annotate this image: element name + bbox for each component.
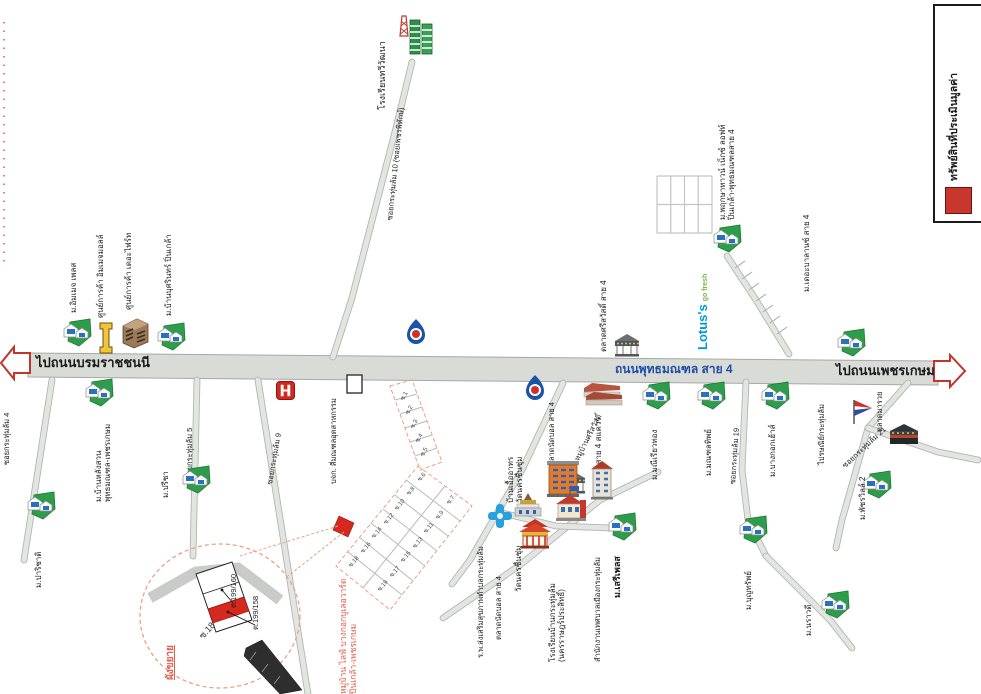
pruksa-town-next-loft-icon xyxy=(712,222,742,254)
seri-place-label: ม.เสรีเพลส xyxy=(612,556,623,598)
legend-box: ทรัพย์สินที่ประเมินมูลค่า xyxy=(933,4,981,223)
label-line: ม.บุญทรัพย์ xyxy=(744,571,753,610)
sai4-square-icon xyxy=(582,380,624,406)
baan-langsuan-label: ม.บ้านหลังสวนพุทธมณฑล-เพชรเกษม xyxy=(94,424,113,502)
bangkok-house-label: ม.บางกอกเฮ้าส์ xyxy=(768,425,777,477)
label-line: ตลาดศรีสวัสดิ์ สาย 4 xyxy=(599,280,608,352)
label-line: ต.199/160 xyxy=(230,574,239,608)
label-line: สำนักงานเทศบาลเมืองกระทุ่มล้ม xyxy=(594,557,603,662)
talat-maruay-icon xyxy=(888,424,920,446)
road-east-label-label: ไปถนนเพชรเกษม xyxy=(836,363,935,378)
health-promoting-hospital-label: ร.พ.ส่งเสริมสุขภาพตำบลกระทุ่มล้ม xyxy=(477,546,486,658)
naravadee-village-label: ม.นราวดี xyxy=(804,605,813,636)
bangkok-house-icon xyxy=(760,379,790,411)
label-line: โรงเรียนทวีวัฒนา xyxy=(377,41,388,110)
seri-place-icon xyxy=(607,510,637,542)
life-bangkok-boulevard-label: หมู่บ้าน ไลฟ์ บางกอกบูเลอวาร์ดปิ่นเกล้า-… xyxy=(338,579,358,694)
label-line: ต.199/158 xyxy=(252,596,261,630)
road-west-label-label: ไปถนนบรมราชชนนี xyxy=(36,355,150,370)
parichat-village-label: ม.ปาริชาติ xyxy=(34,552,43,588)
school-taweewattana-label: โรงเรียนทวีวัฒนา xyxy=(377,41,388,110)
label-line: ม.พัชรวิลล์ 2 xyxy=(858,477,867,520)
label-line: ม.บ้านหลังสวน xyxy=(94,424,103,502)
srisawat-market-icon xyxy=(612,333,642,357)
road-name-label-label: ถนนพุทธมณฑล สาย 4 xyxy=(615,362,733,376)
wat-nakhon-chuenchum-label: วัดนครชื่นชุ่ม xyxy=(514,546,523,592)
label-line: (นครราษฎร์ประสิทธิ์) xyxy=(557,583,566,662)
the-bright-mall-label: ศูนย์การค้า เดอะไฟร์ท xyxy=(124,233,133,310)
boonsap-village-label: ม.บุญทรัพย์ xyxy=(744,571,753,610)
manee-riewthong-label: ม.มณีเรียวทอง xyxy=(650,430,659,480)
lotus-tagline: go fresh xyxy=(702,274,709,302)
label-line: ม.เสรีเพลส xyxy=(612,556,623,598)
srisawat-market-label: ตลาดศรีสวัสดิ์ สาย 4 xyxy=(599,280,608,352)
kratumlom-municipality-label: สำนักงานเทศบาลเมืองกระทุ่มล้ม xyxy=(594,557,603,662)
si-monthon-industry-label: บจก. สี่มณฑลอุตสาหกรรม xyxy=(330,398,339,484)
label-line: ม.นราวดี xyxy=(804,605,813,636)
lotus-logo-text: Lotus's xyxy=(695,304,710,350)
ptt-station-north-icon xyxy=(406,318,426,344)
boonsap-village-icon xyxy=(738,513,768,545)
parichat-village-icon xyxy=(26,489,56,521)
soi-kratumlom-4-label: ซอยกระทุ่มล้ม 4 xyxy=(3,413,12,465)
the-bright-mall-icon xyxy=(120,316,150,350)
ptt-station-south-icon xyxy=(525,374,545,400)
inset-title-label: ผังขยาย xyxy=(165,645,177,680)
label-line: ตลาดนัดบอล สาย 4 xyxy=(495,576,504,640)
the-balance-sai4-icon xyxy=(836,326,866,358)
label-line: พุทธมณฑล-เพชรเกษม xyxy=(103,424,112,502)
label-line: ไปรษณีย์กระทุ่มล้ม xyxy=(818,404,827,465)
temple-hall-icon xyxy=(518,519,552,549)
label-line: ม.มณฑลทิพย์ xyxy=(704,429,713,476)
manee-riewthong-icon xyxy=(641,379,671,411)
image-mall-label: ศูนย์การค้า อิมเมจมอลล์ xyxy=(96,234,105,318)
label-line: บจก. สี่มณฑลอุตสาหกรรม xyxy=(330,398,339,484)
map-canvas: ทรัพย์สินที่ประเมินมูลค่า Lotus's go fre… xyxy=(0,0,981,694)
kratumlom-post-office-label: ไปรษณีย์กระทุ่มล้ม xyxy=(818,404,827,465)
label-line: ศูนย์การค้า อิมเมจมอลล์ xyxy=(96,234,105,318)
plot-199-158-label: ต.199/158 xyxy=(252,596,261,630)
school-ban-kratumlom-icon xyxy=(552,484,588,526)
pruksa-town-next-loft-label: ม.พฤกษาทาวน์ เน็กซ์ ลอฟท์ปิ่นเกล้า-พุทธม… xyxy=(718,124,737,220)
label-line: ถนนพุทธมณฑล สาย 4 xyxy=(615,362,733,376)
image-place-label: ม.อิมเมจ เพลส xyxy=(69,263,78,313)
label-line: วัดนครชื่นชุ่ม xyxy=(514,546,523,592)
label-line: ไปถนนเพชรเกษม xyxy=(836,363,935,378)
label-line: ม.มณีเรียวทอง xyxy=(650,430,659,480)
label-line: ศูนย์การค้า เดอะไฟร์ท xyxy=(124,233,133,310)
baan-busarin-icon xyxy=(156,320,186,352)
image-place-icon xyxy=(62,316,92,348)
preecha-village-label: ม.ปรีชา xyxy=(161,471,170,498)
talat-nat-ball-2-label: ตลาดนัดบอล สาย 4 xyxy=(495,576,504,640)
preecha-village-icon xyxy=(181,463,211,495)
health-promoting-hospital-icon xyxy=(487,503,513,529)
honda-dealer-icon xyxy=(276,381,295,400)
baan-langsuan-icon xyxy=(84,376,114,408)
label-line: ม.ปาริชาติ xyxy=(34,552,43,588)
monthon-thip-label: ม.มณฑลทิพย์ xyxy=(704,429,713,476)
label-line: หมู่บ้าน ไลฟ์ บางกอกบูเลอวาร์ด xyxy=(338,579,348,694)
label-line: ม.บางกอกเฮ้าส์ xyxy=(768,425,777,477)
plot-199-160-label: ต.199/160 xyxy=(230,574,239,608)
label-line: ม.เดอะบาลานซ์ สาย 4 xyxy=(802,215,811,292)
talat-nat-ball-label: ตลาดนัดบอล สาย 4 xyxy=(548,402,557,466)
the-balance-sai4-label: ม.เดอะบาลานซ์ สาย 4 xyxy=(802,215,811,292)
label-line: ปิ่นเกล้า-เพชรเกษม xyxy=(348,579,358,694)
label-line: ซอยกระทุ่มล้ม 4 xyxy=(3,413,12,465)
patchara-ville-2-label: ม.พัชรวิลล์ 2 xyxy=(858,477,867,520)
baan-busarin-label: ม.บ้านบุศรินทร์ ปิ่นเกล้า xyxy=(164,234,173,316)
monthon-thip-icon xyxy=(696,379,726,411)
label-line: ม.ปรีชา xyxy=(161,471,170,498)
kratumlom-post-office-icon xyxy=(850,398,874,426)
image-mall-icon xyxy=(99,322,113,354)
school-taweewattana-icon xyxy=(396,14,434,56)
kratumlom-municipality-icon xyxy=(589,460,615,500)
naravadee-village-icon xyxy=(820,588,850,620)
label-line: ม.บ้านบุศรินทร์ ปิ่นเกล้า xyxy=(164,234,173,316)
lotus-logo: Lotus's go fresh xyxy=(695,274,710,350)
label-line: ผังขยาย xyxy=(165,645,177,680)
appraised-property-swatch xyxy=(945,187,972,214)
si-monthon-industry-icon xyxy=(346,374,363,394)
label-line: ร.พ.ส่งเสริมสุขภาพตำบลกระทุ่มล้ม xyxy=(477,546,486,658)
school-ban-kratumlom-label: โรงเรียนบ้านกระทุ่มล้ม(นครราษฎร์ประสิทธิ… xyxy=(548,583,567,662)
label-line: ตลาดนัดบอล สาย 4 xyxy=(548,402,557,466)
appraised-property-label: ทรัพย์สินที่ประเมินมูลค่า xyxy=(945,73,962,181)
label-line: ปิ่นเกล้า-พุทธมณฑลสาย 4 xyxy=(727,124,736,220)
label-line: ม.อิมเมจ เพลส xyxy=(69,263,78,313)
wat-nakhon-chuenchum-icon xyxy=(513,492,543,518)
label-line: ไปถนนบรมราชชนนี xyxy=(36,355,150,370)
